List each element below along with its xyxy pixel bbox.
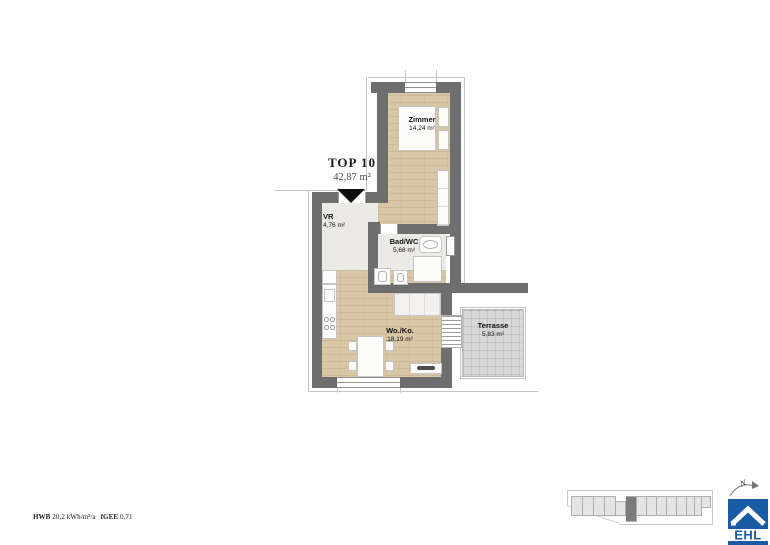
woko-label: Wo./Ko. 18,19 m² (370, 326, 430, 344)
site-plan-outline-right (712, 490, 713, 525)
bad-label: Bad/WC 5,68 m² (374, 237, 434, 255)
wardrobe (437, 170, 449, 226)
site-plan-annex (694, 496, 711, 516)
zimmer-window (405, 82, 436, 93)
site-plan-unit (657, 496, 667, 516)
wall-shaft (446, 236, 455, 256)
dining-chair (348, 361, 357, 371)
context-line-left (308, 190, 309, 392)
context-line-top (368, 77, 465, 78)
terrasse-outline (460, 307, 526, 379)
site-plan-outline-bottom (620, 524, 713, 525)
dining-chair (385, 361, 394, 371)
site-plan-unit (605, 496, 616, 516)
wall-right (450, 82, 461, 293)
dining-chair (348, 341, 357, 351)
site-plan-unit-highlighted (626, 496, 637, 522)
wall-bottom-right (400, 377, 452, 388)
vr-label: VR 4,76 m² (323, 212, 367, 230)
stove-burner (330, 325, 335, 330)
site-plan-unit (583, 496, 594, 516)
kitchen-stove (323, 315, 336, 335)
stove-burner (330, 317, 335, 322)
wall-left (312, 192, 322, 388)
site-plan-unit (647, 496, 657, 516)
site-plan-unit (571, 496, 583, 516)
kitchen-sink (324, 289, 335, 302)
site-plan-outline-left (567, 490, 568, 506)
wc-bowl (397, 273, 404, 282)
hwb-label: HWB (33, 513, 50, 521)
stove-burner (324, 317, 329, 322)
sofa (394, 293, 441, 316)
stove-burner (324, 325, 329, 330)
site-plan-unit (667, 496, 677, 516)
wall-bottom-left (312, 377, 337, 388)
site-plan-units (571, 496, 698, 522)
window-reveal-bottom-a (337, 388, 338, 393)
site-plan-unit (694, 496, 702, 516)
ehl-roof-eave (731, 523, 736, 526)
wc (393, 270, 408, 285)
window-reveal-top-a (405, 70, 406, 82)
context-line-bottom (308, 391, 538, 392)
wall-band-south-of-bad (368, 283, 528, 293)
floorplan-page: Zimmer 14,24 m² VR 4,76 m² Bad/WC 5,68 m… (0, 0, 770, 545)
unit-title-area: 42,87 m² (300, 172, 404, 183)
site-plan-unit (637, 496, 647, 516)
site-plan-unit (616, 501, 626, 516)
fgee-label: fGEE (101, 513, 119, 521)
zimmer-label: Zimmer 14,24 m² (392, 115, 452, 133)
washing-machine (374, 268, 391, 285)
site-plan-outline-top (567, 490, 713, 491)
ehl-logo: EHL (728, 499, 768, 545)
site-plan-unit (594, 496, 605, 516)
hwb-value: 20,2 kWh/m²/a (52, 513, 95, 521)
unit-title: TOP 10 42,87 m² (300, 155, 404, 183)
context-line-right (464, 77, 465, 283)
tv (417, 366, 435, 370)
energy-footer: HWB 20,2 kWh/m²/a fGEE 0,71 (33, 513, 133, 521)
washing-machine-drum (378, 271, 387, 282)
unit-title-name: TOP 10 (300, 155, 404, 171)
entrance-marker-icon (337, 189, 365, 203)
north-label: N (738, 477, 749, 489)
ehl-logo-text: EHL (734, 528, 762, 543)
wall-woko-right-upper (441, 293, 452, 315)
kitchen-tall-cabinet (322, 270, 337, 284)
shower (413, 256, 442, 282)
wall-vr-top-right (366, 192, 388, 203)
site-plan (565, 488, 715, 528)
terrasse-door-threshold (441, 315, 462, 348)
north-arrow-icon: N (728, 477, 764, 499)
woko-window (337, 377, 400, 388)
site-plan-unit (702, 496, 711, 508)
terrasse-label: Terrasse 5,83 m² (462, 321, 524, 339)
window-reveal-bottom-b (400, 388, 401, 393)
site-plan-unit (677, 496, 687, 516)
bad-door (380, 224, 398, 234)
fgee-value: 0,71 (120, 513, 133, 521)
window-reveal-top-b (436, 70, 437, 82)
